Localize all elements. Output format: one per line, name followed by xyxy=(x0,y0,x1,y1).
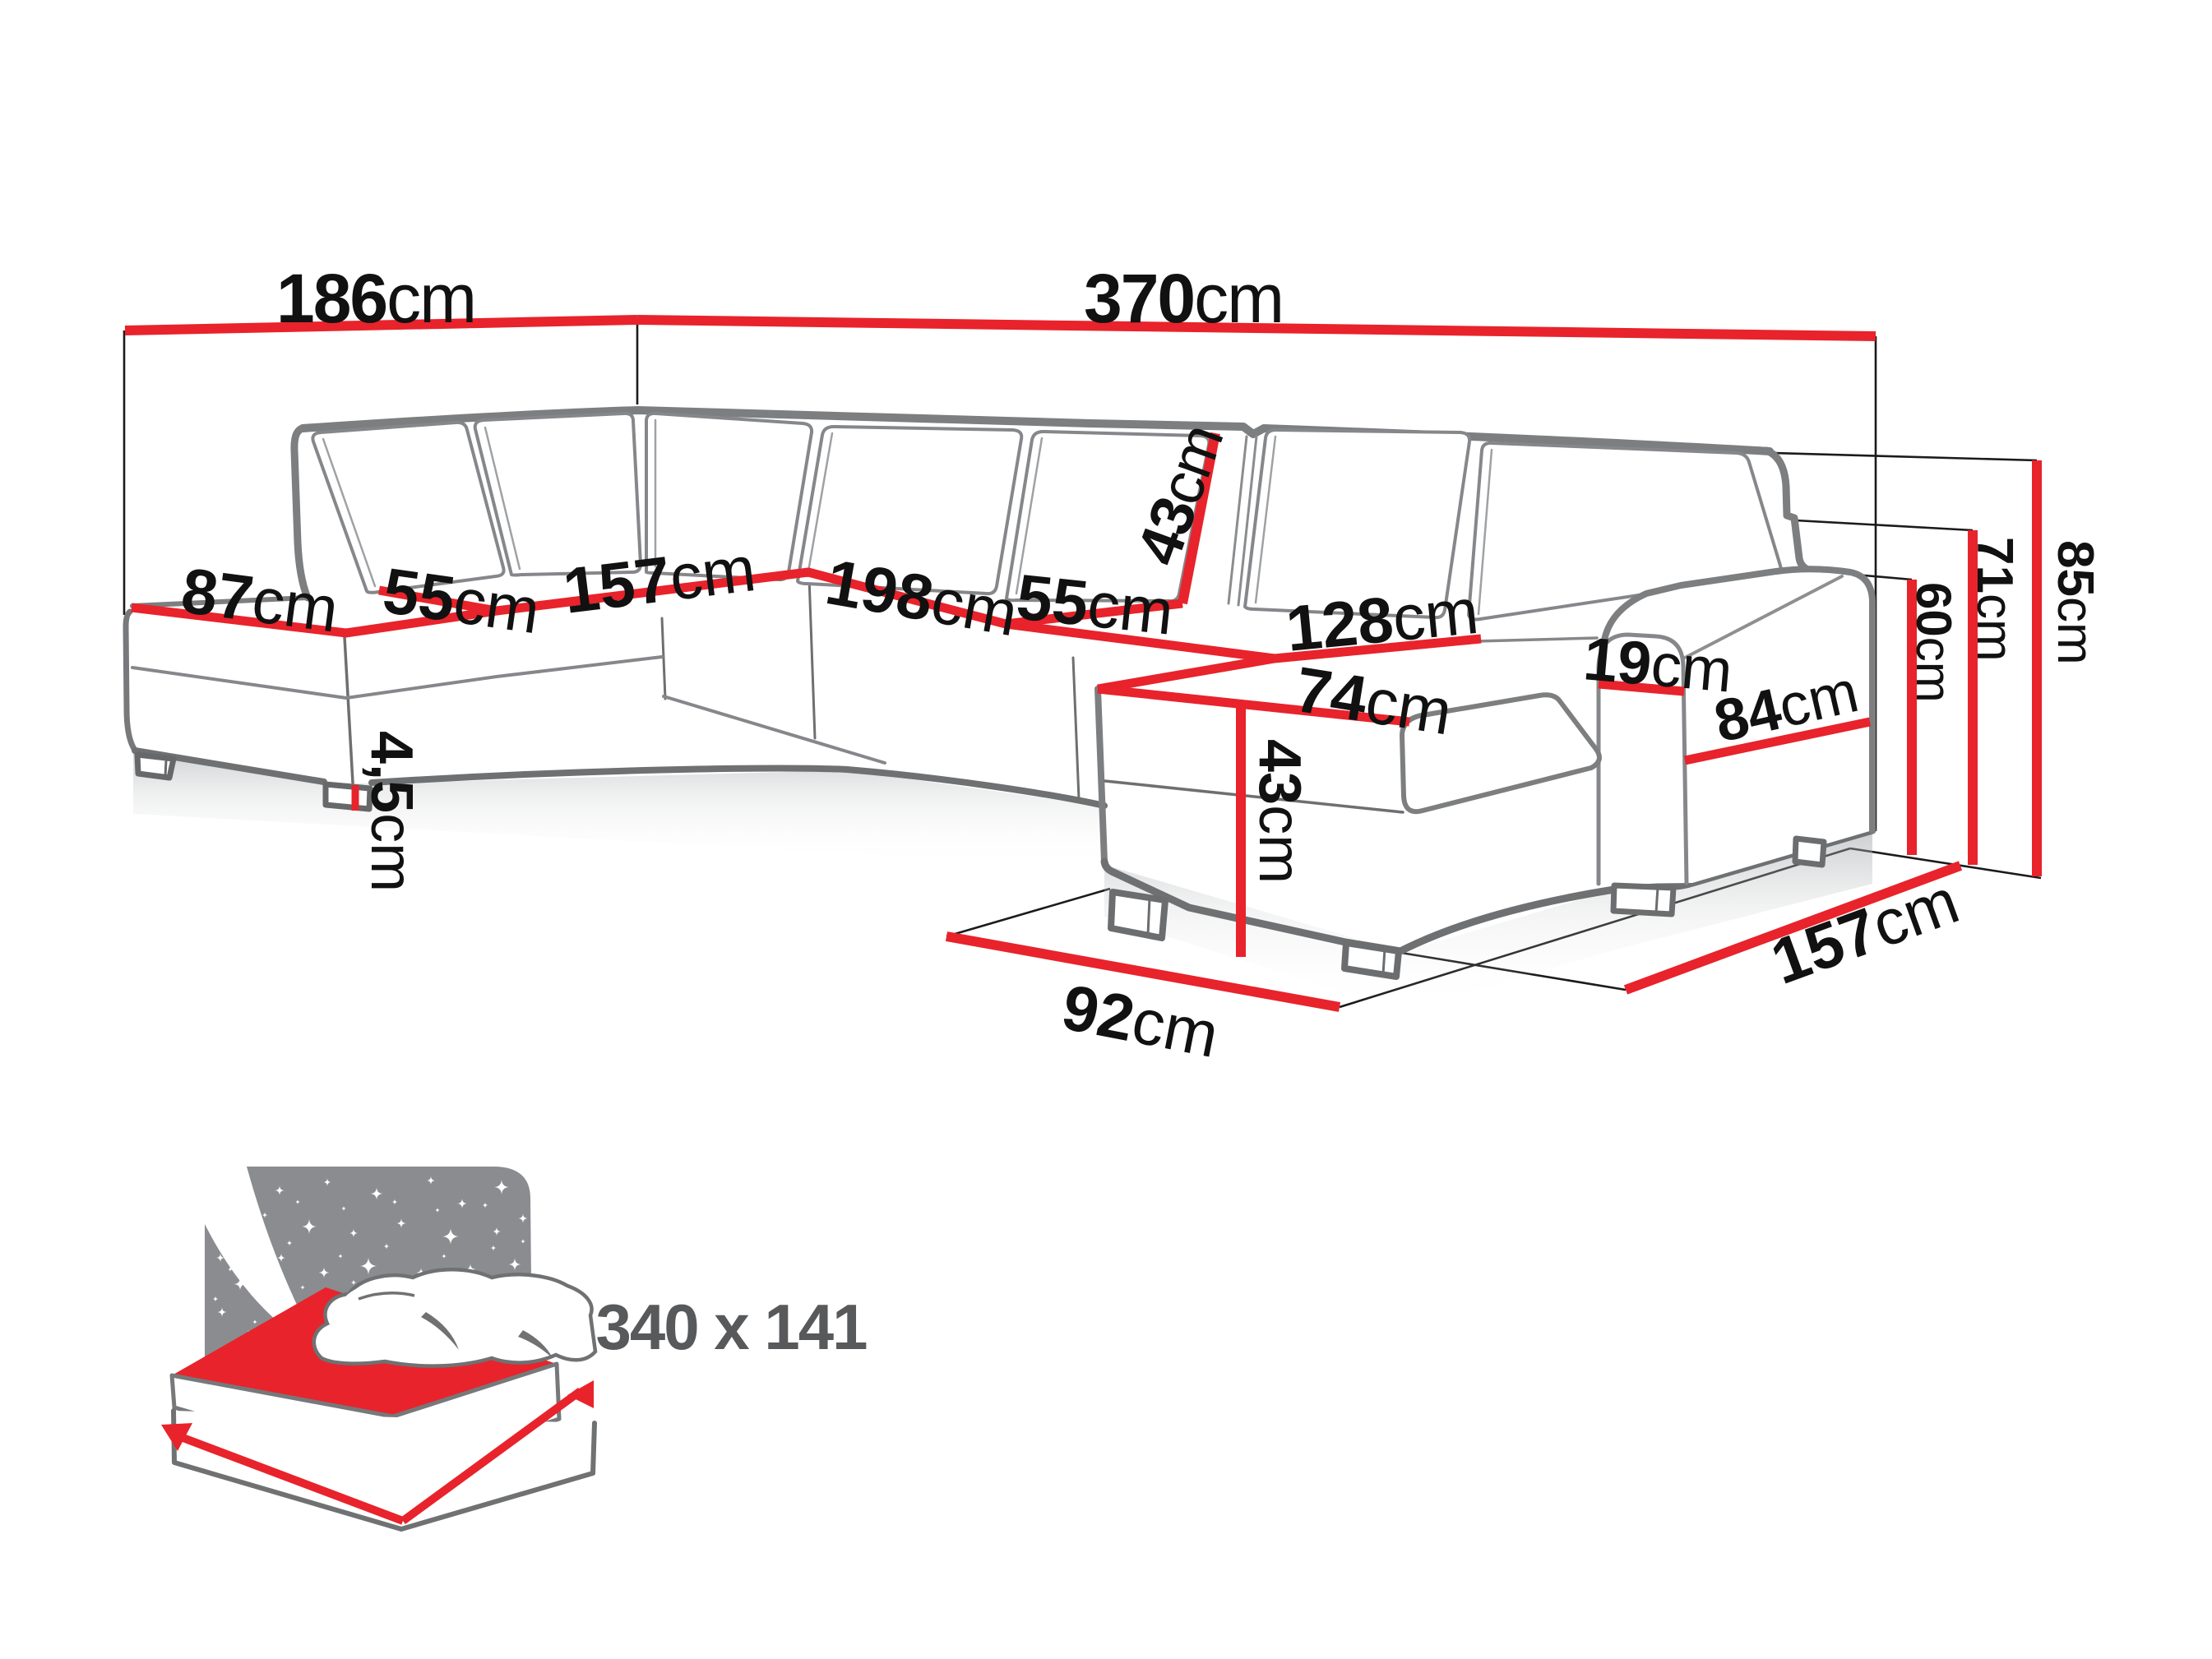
svg-text:85cm: 85cm xyxy=(2047,540,2103,665)
svg-text:4,5cm: 4,5cm xyxy=(359,731,424,892)
svg-text:340 x 141: 340 x 141 xyxy=(595,1291,867,1363)
svg-text:43cm: 43cm xyxy=(1247,739,1312,884)
svg-text:71cm: 71cm xyxy=(1966,537,2023,662)
svg-text:370cm: 370cm xyxy=(1084,260,1283,337)
svg-text:186cm: 186cm xyxy=(276,260,475,337)
svg-text:60cm: 60cm xyxy=(1906,582,1961,703)
